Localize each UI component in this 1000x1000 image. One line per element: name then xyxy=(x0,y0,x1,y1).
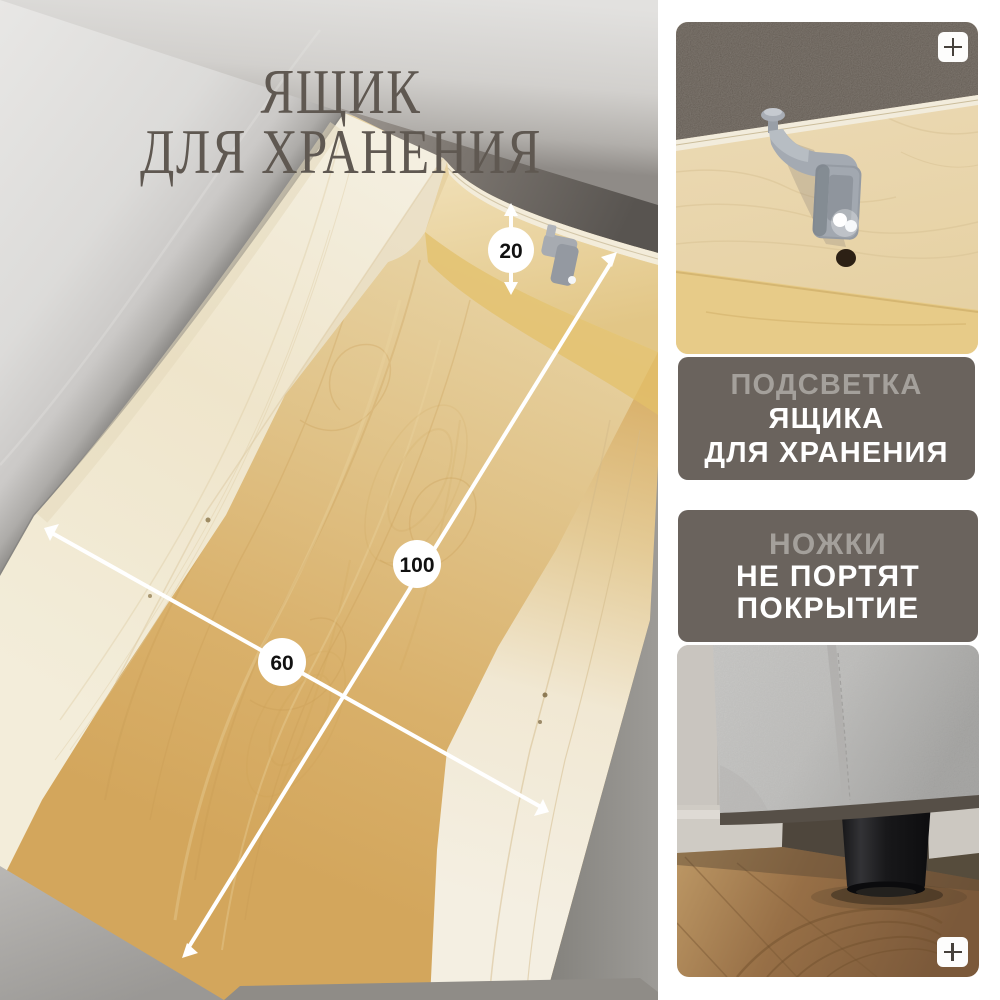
svg-text:100: 100 xyxy=(399,554,434,577)
svg-text:60: 60 xyxy=(270,652,293,675)
svg-text:20: 20 xyxy=(499,240,522,263)
